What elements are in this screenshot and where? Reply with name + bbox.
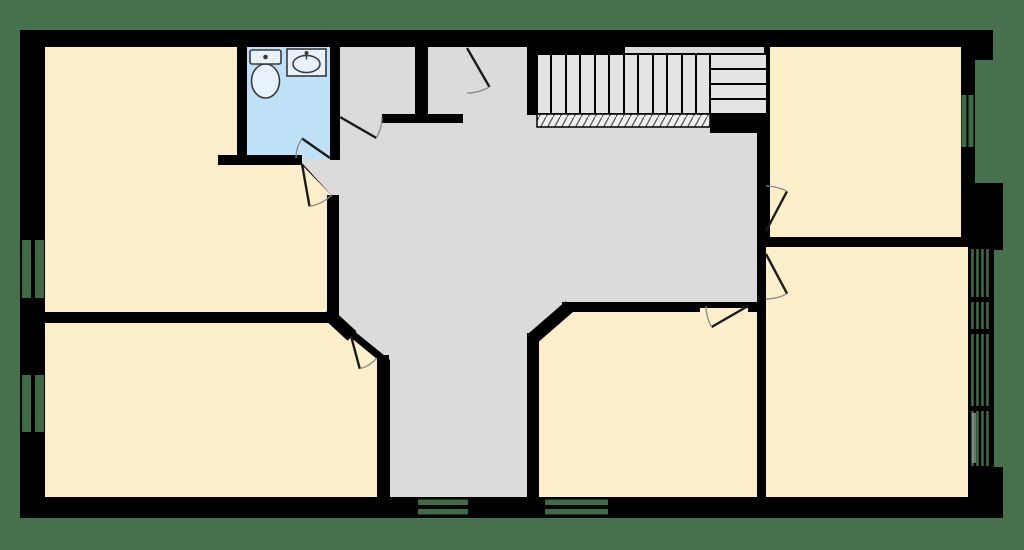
window-right-large [968,247,994,497]
window-glass-bar [969,95,974,147]
window-glass-bar [418,509,468,515]
room-floors [45,47,971,497]
bedroom-top-right-floor [770,47,961,237]
interior-wall [218,155,302,165]
window-segment [970,302,990,329]
interior-wall [710,114,770,133]
bedroom-bottom-left-floor [45,323,377,497]
interior-wall [527,47,537,115]
floor-plan-stage [0,0,1024,550]
exterior-wall-jog-top-right [966,30,993,60]
interior-wall [327,195,339,316]
interior-wall [527,333,539,497]
interior-wall [377,355,389,497]
interior-wall [757,297,766,497]
interior-wall [527,47,625,54]
interior-wall [415,47,428,123]
stair-railing-hatch [537,114,710,127]
floor-plan-canvas [0,0,1024,550]
toilet-icon [250,50,281,98]
window-glass-bar [22,240,31,298]
interior-wall [757,237,961,247]
interior-wall [20,312,333,323]
window-glass-bar [418,500,468,506]
window-glass-bar [22,375,31,432]
window-segment [970,249,990,297]
window-glass-bar [545,500,608,506]
toilet-flush-button [263,55,268,60]
exterior-wall-jog-right [958,183,1003,250]
bedroom-bottom-center-floor [539,308,762,497]
interior-wall [757,130,766,186]
window-glass-bar [962,95,967,147]
window-glass-bar [545,509,608,515]
window-glass-bar [35,375,44,432]
sink-faucet [305,51,309,55]
bedroom-right-floor [766,247,971,497]
interior-wall [237,47,247,165]
sink-icon [287,49,326,76]
window-segment [970,334,990,406]
window-glass-bar [35,240,44,298]
interior-wall [562,302,700,312]
interior-wall [330,47,340,160]
toilet-bowl [252,64,280,98]
window-shade [972,413,976,463]
